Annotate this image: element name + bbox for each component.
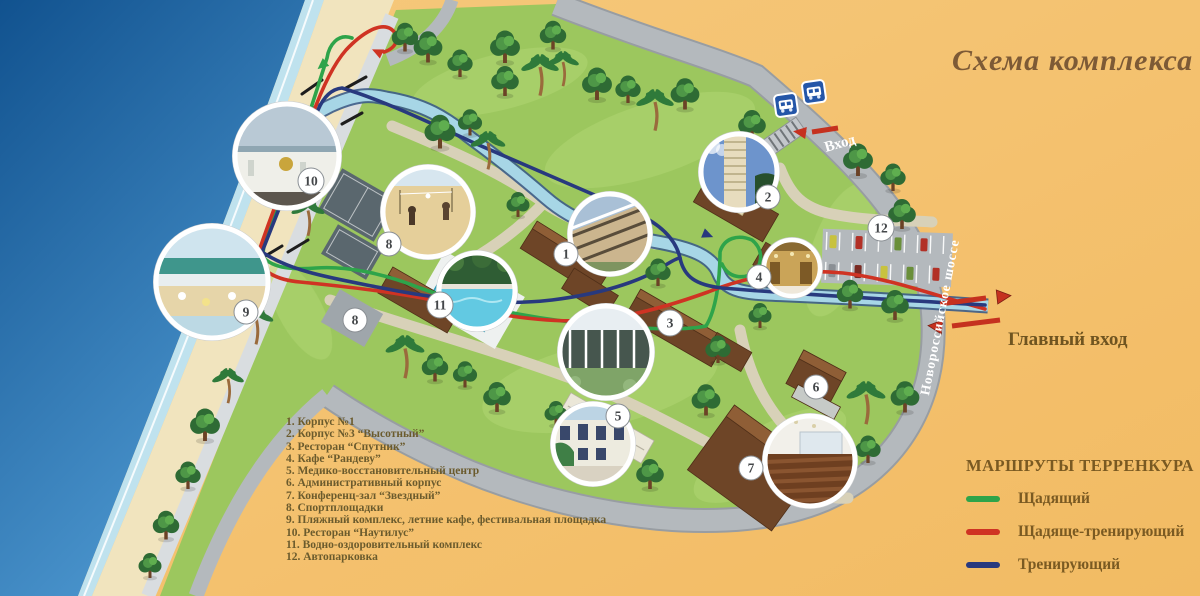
badge-2: 2 bbox=[756, 185, 780, 209]
legend-item: 7. Конференц-зал “Звездный” bbox=[286, 490, 606, 502]
badge-5: 5 bbox=[606, 404, 630, 428]
legend-item: 6. Административный корпус bbox=[286, 477, 606, 489]
legend-item: 5. Медико-восстановительный центр bbox=[286, 465, 606, 477]
svg-text:8: 8 bbox=[386, 237, 393, 252]
routes-legend-row: Щадящий bbox=[966, 490, 1194, 508]
route-swatch-blue bbox=[966, 562, 1000, 568]
badge-1: 1 bbox=[554, 242, 578, 266]
callout-photo-4 bbox=[761, 237, 823, 299]
routes-legend-title: МАРШРУТЫ ТЕРРЕНКУРА bbox=[966, 456, 1194, 476]
svg-text:4: 4 bbox=[756, 270, 763, 285]
legend-item: 12. Автопарковка bbox=[286, 551, 606, 563]
main-entrance-label: Главный вход bbox=[1008, 329, 1128, 350]
badge-3: 3 bbox=[657, 310, 683, 336]
badge-11: 11 bbox=[427, 292, 453, 318]
badge-8-courts: 8 bbox=[343, 308, 367, 332]
svg-text:7: 7 bbox=[748, 461, 755, 476]
callout-photo-7 bbox=[762, 413, 858, 509]
routes-legend: МАРШРУТЫ ТЕРРЕНКУРА Щадящий Щадяще-трени… bbox=[966, 456, 1194, 589]
route-label: Тренирующий bbox=[1018, 556, 1120, 574]
svg-text:5: 5 bbox=[615, 409, 622, 424]
svg-text:1: 1 bbox=[563, 247, 570, 262]
badge-4: 4 bbox=[747, 265, 771, 289]
bus-stop-icon bbox=[802, 80, 827, 105]
callout-photo-9 bbox=[153, 223, 271, 341]
route-label: Щадящий bbox=[1018, 490, 1090, 508]
legend-item: 4. Кафе “Рандеву” bbox=[286, 453, 606, 465]
route-swatch-red bbox=[966, 529, 1000, 535]
svg-text:10: 10 bbox=[304, 174, 318, 189]
callout-photo-1 bbox=[567, 191, 653, 277]
badge-7: 7 bbox=[739, 456, 763, 480]
legend-item: 2. Корпус №3 “Высотный” bbox=[286, 428, 606, 440]
svg-text:6: 6 bbox=[813, 380, 820, 395]
legend-item: 9. Пляжный комплекс, летние кафе, фестив… bbox=[286, 514, 606, 526]
numbered-legend: 1. Корпус №1 2. Корпус №3 “Высотный” 3. … bbox=[286, 416, 606, 564]
callout-photo-3 bbox=[557, 303, 655, 401]
badge-9: 9 bbox=[234, 300, 258, 324]
route-swatch-green bbox=[966, 496, 1000, 502]
badge-6: 6 bbox=[804, 375, 828, 399]
svg-text:2: 2 bbox=[765, 190, 772, 205]
svg-text:11: 11 bbox=[434, 298, 447, 313]
svg-text:3: 3 bbox=[667, 316, 674, 331]
legend-item: 1. Корпус №1 bbox=[286, 416, 606, 428]
badge-8-volleyball: 8 bbox=[377, 232, 401, 256]
legend-item: 8. Спортплощадки bbox=[286, 502, 606, 514]
resort-scheme-page: 1 2 3 4 5 6 7 8 8 9 10 11 12 Вход Главны… bbox=[0, 0, 1200, 596]
svg-text:9: 9 bbox=[243, 305, 250, 320]
svg-text:8: 8 bbox=[352, 313, 359, 328]
svg-text:12: 12 bbox=[874, 221, 888, 236]
legend-item: 10. Ресторан “Наутилус” bbox=[286, 527, 606, 539]
legend-item: 3. Ресторан “Спутник” bbox=[286, 441, 606, 453]
bus-stop-icon bbox=[774, 93, 799, 118]
badge-10: 10 bbox=[298, 168, 324, 194]
legend-item: 11. Водно-оздоровительный комплекс bbox=[286, 539, 606, 551]
page-title: Схема комплекса bbox=[952, 44, 1192, 78]
routes-legend-row: Щадяще-тренирующий bbox=[966, 523, 1194, 541]
badge-12: 12 bbox=[868, 215, 894, 241]
routes-legend-row: Тренирующий bbox=[966, 556, 1194, 574]
route-label: Щадяще-тренирующий bbox=[1018, 523, 1184, 541]
